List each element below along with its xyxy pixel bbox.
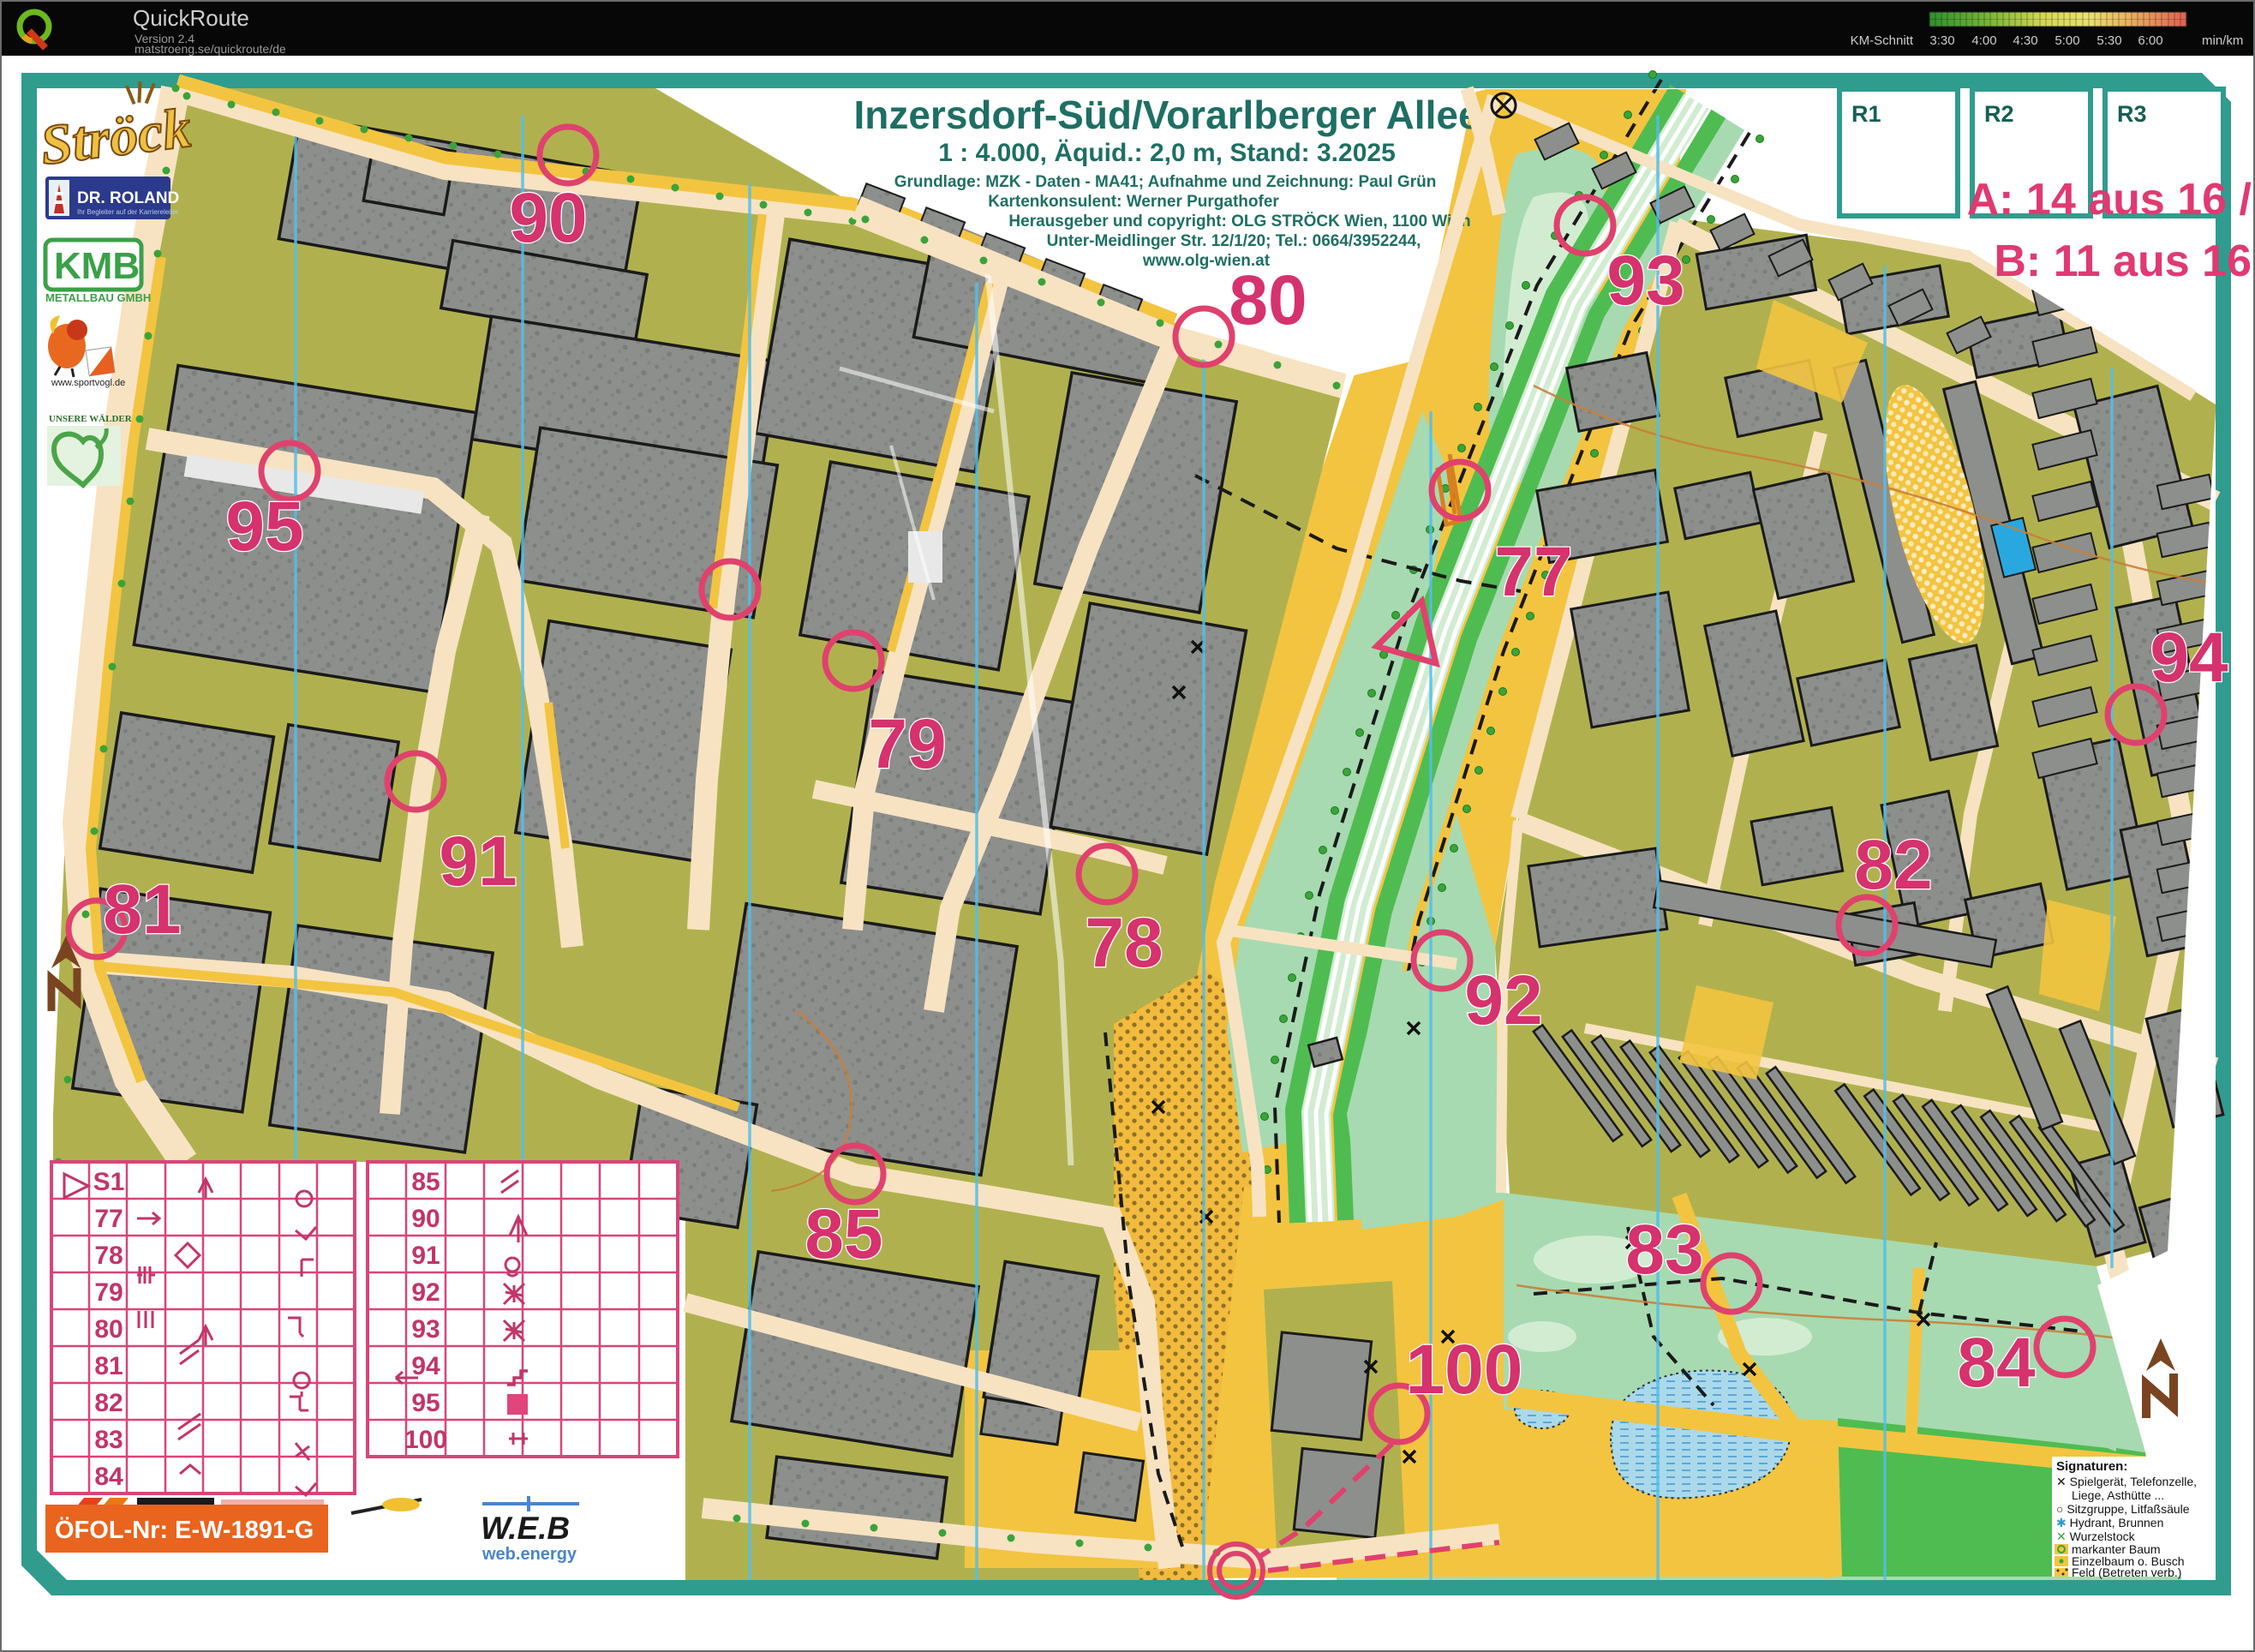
- svg-text:R3: R3: [2117, 101, 2147, 127]
- svg-text:92: 92: [411, 1278, 440, 1307]
- svg-text:77: 77: [94, 1205, 123, 1233]
- svg-text:QuickRoute: QuickRoute: [133, 5, 249, 31]
- svg-text:✕ Spielgerät, Telefonzelle,: ✕ Spielgerät, Telefonzelle,: [2056, 1475, 2197, 1488]
- svg-text:78: 78: [94, 1242, 123, 1270]
- svg-text:90: 90: [411, 1205, 440, 1233]
- svg-text:85: 85: [411, 1168, 440, 1196]
- svg-text:95: 95: [225, 488, 303, 566]
- svg-text:93: 93: [1606, 242, 1684, 320]
- svg-text:85: 85: [805, 1195, 882, 1273]
- svg-text:5:00: 5:00: [2055, 33, 2079, 48]
- svg-text:○ Sitzgruppe, Litfaßsäule: ○ Sitzgruppe, Litfaßsäule: [2056, 1502, 2190, 1516]
- svg-text:web.energy: web.energy: [482, 1545, 577, 1564]
- svg-text:KMB: KMB: [54, 245, 140, 287]
- svg-text:3:30: 3:30: [1929, 33, 1954, 48]
- svg-text:Inzersdorf-Süd/Vorarlberger Al: Inzersdorf-Süd/Vorarlberger Allee: [853, 93, 1480, 137]
- svg-text:81: 81: [103, 871, 181, 949]
- svg-text:B: 11 aus 16: B: 11 aus 16: [1994, 236, 2252, 286]
- svg-text:81: 81: [94, 1352, 123, 1380]
- svg-text:UΝSERE WÄLDER: UΝSERE WÄLDER: [49, 413, 133, 424]
- svg-text:6:00: 6:00: [2138, 33, 2162, 48]
- svg-text:79: 79: [868, 705, 946, 783]
- svg-text:Feld (Betreten verb.): Feld (Betreten verb.): [2072, 1565, 2181, 1579]
- svg-text:94: 94: [411, 1352, 440, 1380]
- svg-text:95: 95: [411, 1389, 440, 1417]
- svg-text:KM-Schnitt: KM-Schnitt: [1851, 33, 1914, 48]
- svg-text:78: 78: [1085, 904, 1163, 982]
- svg-text:92: 92: [1464, 961, 1542, 1039]
- svg-text:79: 79: [94, 1278, 123, 1307]
- svg-text:4:30: 4:30: [2013, 33, 2037, 48]
- svg-text:matstroeng.se/quickroute/de: matstroeng.se/quickroute/de: [135, 42, 286, 56]
- svg-text:Signaturen:: Signaturen:: [2056, 1459, 2127, 1474]
- svg-text:Grundlage: MZK - Daten - MA41;: Grundlage: MZK - Daten - MA41; Aufnahme …: [894, 173, 1437, 191]
- svg-text:80: 80: [1229, 261, 1307, 339]
- svg-text:82: 82: [94, 1389, 123, 1417]
- svg-text:Ihr Begleiter auf der Karriere: Ihr Begleiter auf der Karriereleiter.: [77, 208, 180, 216]
- svg-text:91: 91: [439, 823, 517, 901]
- svg-text:min/km: min/km: [2202, 33, 2243, 48]
- svg-text:DR. ROLAND: DR. ROLAND: [77, 189, 179, 207]
- svg-text:80: 80: [94, 1315, 123, 1344]
- svg-text:Liege, Asthütte ...: Liege, Asthütte ...: [2072, 1488, 2164, 1502]
- svg-text:✕ Wurzelstock: ✕ Wurzelstock: [2056, 1529, 2136, 1543]
- svg-text:✱ Hydrant, Brunnen: ✱ Hydrant, Brunnen: [2056, 1516, 2163, 1529]
- svg-text:R1: R1: [1851, 101, 1881, 127]
- svg-text:100: 100: [1406, 1331, 1523, 1409]
- svg-text:METALLBAU GMBH: METALLBAU GMBH: [45, 291, 151, 304]
- svg-text:R2: R2: [1984, 101, 2014, 127]
- svg-text:W.E.B: W.E.B: [481, 1511, 570, 1546]
- svg-text:84: 84: [1957, 1324, 2036, 1402]
- svg-text:www.sportvogl.de: www.sportvogl.de: [51, 378, 125, 388]
- svg-text:83: 83: [1625, 1211, 1703, 1289]
- svg-text:ÖFOL-Nr: E-W-1891-G: ÖFOL-Nr: E-W-1891-G: [55, 1516, 314, 1544]
- svg-text:5:30: 5:30: [2096, 33, 2121, 48]
- svg-text:84: 84: [94, 1463, 123, 1491]
- svg-text:100: 100: [404, 1426, 447, 1454]
- svg-text:Herausgeber und copyright: OLG: Herausgeber und copyright: OLG STRÖCK Wi…: [1008, 212, 1470, 230]
- svg-text:94: 94: [2150, 619, 2228, 697]
- svg-text:77: 77: [1494, 533, 1572, 611]
- svg-text:4:00: 4:00: [1971, 33, 1996, 48]
- svg-text:93: 93: [411, 1315, 440, 1344]
- svg-text:A: 14 aus 16 /: A: 14 aus 16 /: [1967, 175, 2252, 224]
- svg-text:82: 82: [1854, 826, 1932, 904]
- svg-text:1 : 4.000, Äquid.: 2,0 m, Stan: 1 : 4.000, Äquid.: 2,0 m, Stand: 3.2025: [938, 139, 1396, 167]
- svg-text:Unter-Meidlinger Str. 12/1/20;: Unter-Meidlinger Str. 12/1/20; Tel.: 066…: [1047, 232, 1421, 250]
- svg-text:90: 90: [509, 179, 587, 257]
- svg-text:91: 91: [411, 1242, 440, 1270]
- svg-text:Kartenkonsulent: Werner Purgat: Kartenkonsulent: Werner Purgathofer: [988, 193, 1279, 211]
- svg-text:S1: S1: [93, 1168, 125, 1196]
- svg-text:83: 83: [94, 1426, 123, 1454]
